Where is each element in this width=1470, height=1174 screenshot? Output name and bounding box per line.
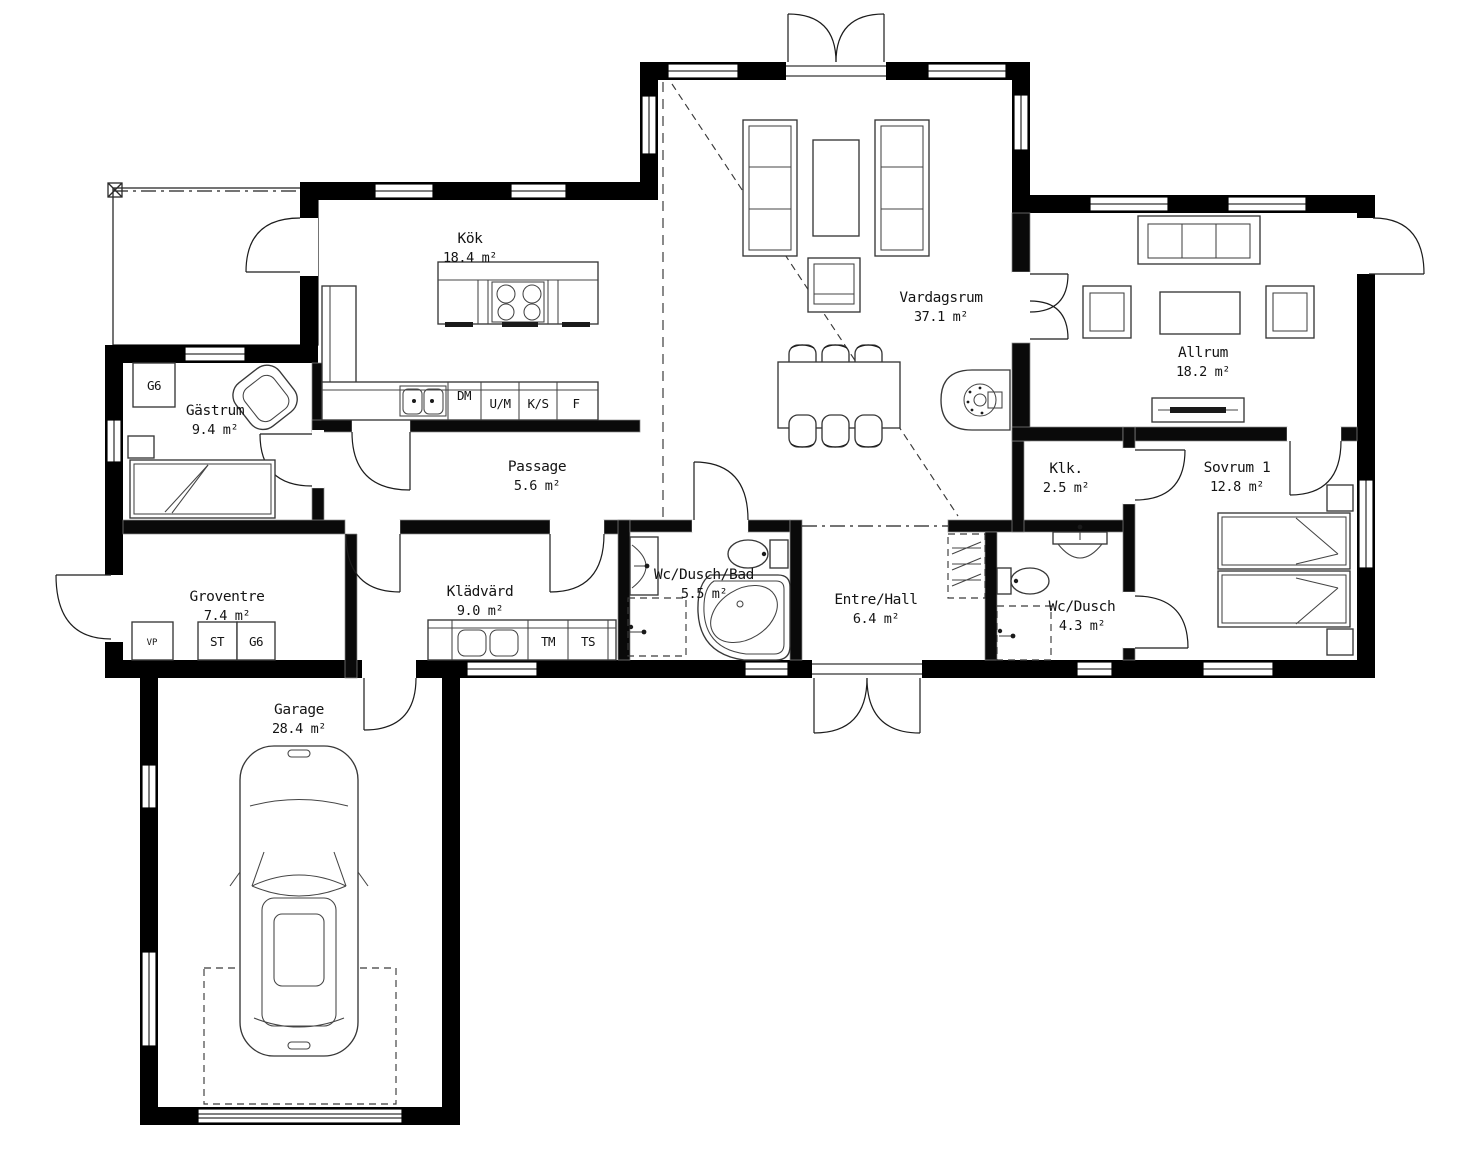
window xyxy=(467,662,537,676)
bed xyxy=(1218,571,1350,627)
label-um: U/M xyxy=(489,396,510,411)
door-entre-double xyxy=(812,660,922,733)
armchair xyxy=(1083,286,1131,338)
room-label-garage: Garage28.4 m² xyxy=(272,702,326,737)
door-klk xyxy=(1123,448,1185,504)
window xyxy=(511,184,566,198)
label-ts: TS xyxy=(581,634,595,649)
window xyxy=(928,64,1006,78)
entre-coat-rack xyxy=(948,534,985,598)
svg-text:7.4 m²: 7.4 m² xyxy=(204,608,250,624)
svg-text:Entre/Hall: Entre/Hall xyxy=(834,592,917,608)
svg-text:Garage: Garage xyxy=(274,702,324,718)
fireplace xyxy=(941,370,1010,430)
garage-door xyxy=(198,1109,402,1123)
window xyxy=(1090,197,1168,211)
label-f: F xyxy=(572,396,579,411)
label-tm: TM xyxy=(541,634,555,649)
room-label-klk: Klk.2.5 m² xyxy=(1043,461,1089,496)
nightstand xyxy=(1327,485,1353,511)
window xyxy=(185,347,245,361)
kitchen-island xyxy=(438,262,598,327)
label-vp: VP xyxy=(147,638,158,648)
tv xyxy=(1170,407,1226,413)
wcdusch-fixtures xyxy=(997,525,1107,660)
window xyxy=(1359,480,1373,568)
svg-text:5.5 m²: 5.5 m² xyxy=(681,586,727,602)
door-wcdusch xyxy=(1123,592,1188,648)
door-kok-passage xyxy=(352,420,410,490)
window xyxy=(142,765,156,808)
sofa xyxy=(875,120,929,256)
door-groventre-exterior xyxy=(56,575,123,642)
dining-chair xyxy=(789,415,816,447)
window xyxy=(142,952,156,1046)
svg-text:12.8 m²: 12.8 m² xyxy=(1210,479,1264,495)
window xyxy=(668,64,738,78)
svg-text:Groventre: Groventre xyxy=(190,589,265,605)
window xyxy=(1203,662,1273,676)
svg-text:Kök: Kök xyxy=(458,231,484,247)
svg-text:28.4 m²: 28.4 m² xyxy=(272,721,326,737)
allrum-furniture xyxy=(1083,216,1314,422)
door-kladvard xyxy=(550,520,604,592)
room-label-kok: Kök18.4 m² xyxy=(443,231,497,266)
door-vardagsrum-allrum xyxy=(1012,272,1068,341)
svg-text:Gästrum: Gästrum xyxy=(186,403,245,419)
car xyxy=(230,746,368,1056)
dining-chair xyxy=(822,415,849,447)
label-dm: DM xyxy=(457,388,471,403)
window xyxy=(1228,197,1306,211)
window xyxy=(375,184,433,198)
svg-text:37.1 m²: 37.1 m² xyxy=(914,309,968,325)
svg-text:9.4 m²: 9.4 m² xyxy=(192,422,238,438)
toilet xyxy=(997,568,1049,594)
terrace xyxy=(108,183,318,345)
window xyxy=(107,420,121,462)
svg-text:6.4 m²: 6.4 m² xyxy=(853,611,899,627)
window xyxy=(745,662,788,676)
garage-contents xyxy=(204,746,396,1104)
bed xyxy=(1218,513,1350,569)
svg-text:2.5 m²: 2.5 m² xyxy=(1043,480,1089,496)
svg-text:Klädvärd: Klädvärd xyxy=(447,584,514,600)
room-label-allrum: Allrum18.2 m² xyxy=(1176,345,1230,380)
svg-text:5.6 m²: 5.6 m² xyxy=(514,478,560,494)
room-label-groventre: Groventre7.4 m² xyxy=(190,589,265,624)
svg-text:Passage: Passage xyxy=(508,459,566,475)
room-label-gastrum: Gästrum9.4 m² xyxy=(186,403,245,438)
shower xyxy=(628,598,686,656)
dining-chair xyxy=(855,415,882,447)
svg-text:Klk.: Klk. xyxy=(1049,461,1082,477)
label-g6-gastrum: G6 xyxy=(147,378,161,393)
nightstand xyxy=(1327,629,1353,655)
floor-plan-drawing: Kök18.4 m² Gästrum9.4 m² Passage5.6 m² V… xyxy=(0,0,1470,1174)
window xyxy=(1077,662,1112,676)
toilet xyxy=(728,540,788,568)
coffee-table xyxy=(813,140,859,236)
svg-text:Sovrum 1: Sovrum 1 xyxy=(1204,460,1271,476)
window xyxy=(1014,95,1028,150)
sofa xyxy=(743,120,797,256)
door-garage xyxy=(362,660,416,730)
side-table xyxy=(128,436,154,458)
armchair xyxy=(1266,286,1314,338)
room-label-sovrum1: Sovrum 112.8 m² xyxy=(1204,460,1271,495)
sofa xyxy=(1138,216,1260,264)
room-label-entrehall: Entre/Hall6.4 m² xyxy=(834,592,917,627)
vardagsrum-furniture xyxy=(743,120,1010,447)
svg-text:Wc/Dusch/Bad: Wc/Dusch/Bad xyxy=(654,567,754,583)
label-g6-groventre: G6 xyxy=(249,634,263,649)
label-ks: K/S xyxy=(527,396,548,411)
svg-text:Wc/Dusch: Wc/Dusch xyxy=(1049,599,1116,615)
room-label-wcdusch: Wc/Dusch4.3 m² xyxy=(1049,599,1116,634)
svg-text:9.0 m²: 9.0 m² xyxy=(457,603,503,619)
room-label-kladvard: Klädvärd9.0 m² xyxy=(447,584,514,619)
svg-text:Allrum: Allrum xyxy=(1178,345,1229,361)
armchair xyxy=(808,258,860,312)
shower xyxy=(997,606,1051,660)
svg-text:18.4 m²: 18.4 m² xyxy=(443,250,497,266)
svg-text:18.2 m²: 18.2 m² xyxy=(1176,364,1230,380)
floor-plan-page: Kök18.4 m² Gästrum9.4 m² Passage5.6 m² V… xyxy=(0,0,1470,1174)
label-st: ST xyxy=(210,634,225,649)
bathroom-sink xyxy=(630,537,658,595)
room-label-passage: Passage5.6 m² xyxy=(508,459,566,494)
door-allrum-exterior xyxy=(1357,218,1424,274)
sovrum1-furniture xyxy=(1218,485,1353,655)
door-kitchen-terrace xyxy=(246,218,318,276)
coffee-table xyxy=(1160,292,1240,334)
svg-text:4.3 m²: 4.3 m² xyxy=(1059,618,1105,634)
dining-set xyxy=(778,345,900,447)
door-wcduschbad xyxy=(692,462,748,532)
room-label-vardagsrum: Vardagsrum37.1 m² xyxy=(899,290,983,325)
svg-text:Vardagsrum: Vardagsrum xyxy=(899,290,983,306)
window xyxy=(642,96,656,154)
single-bed xyxy=(130,460,275,518)
tv-bench xyxy=(1152,398,1244,422)
door-vardagsrum-double xyxy=(786,14,886,80)
